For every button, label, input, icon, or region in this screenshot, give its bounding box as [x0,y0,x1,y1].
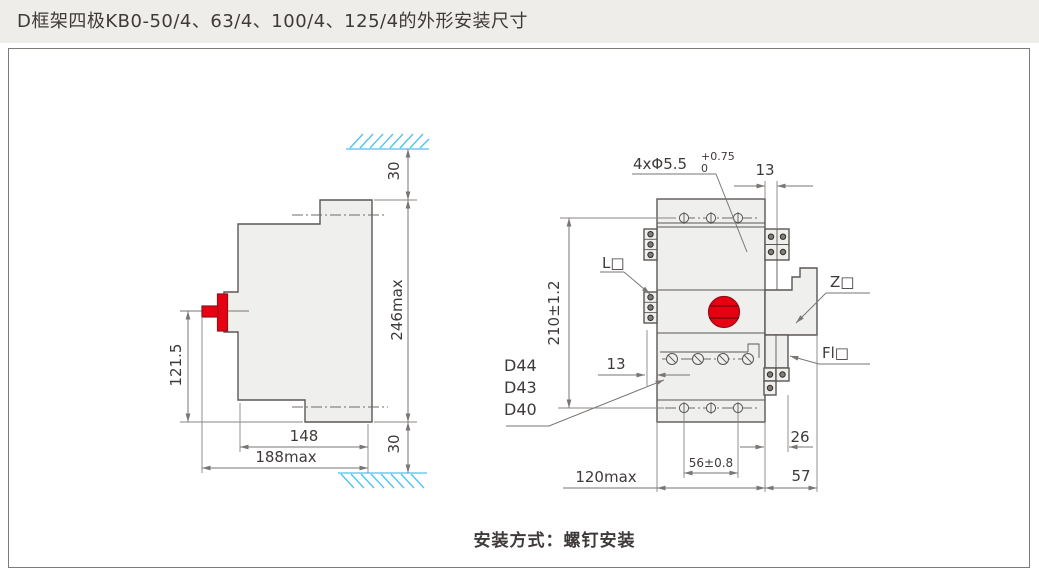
label-z-accessory: Z□ [830,273,854,291]
label-model-2: D43 [504,378,537,397]
dim-top-gap: 30 [385,161,403,180]
left-terminal-strip-upper [644,229,657,260]
dim-bottom-gap: 30 [385,434,403,453]
dim-hole-pitch-vertical-label: 210±1.2 [545,280,563,345]
label-model-1: D44 [504,356,537,375]
side-view: 30 246max 30 121.5 148 188max [167,134,429,488]
callout-aux-contact: L□ [600,254,650,294]
stop-button [709,297,740,328]
mounting-surface-bottom-hatch [338,473,427,488]
dim-top-terminal-depth: 13 [734,161,813,186]
technical-drawing: 30 246max 30 121.5 148 188max [0,0,1039,578]
dim-mounting-holes-label: 4xΦ5.5 [633,155,687,173]
front-view: 210±1.2 13 4xΦ5.5 +0.75 0 L□ Z□ Fl [504,150,870,492]
dim-overall-depth: 188max [255,448,316,466]
dim-handle-to-base-label: 121.5 [167,344,185,387]
label-model-3: D40 [504,400,537,419]
dim-handle-to-base: 121.5 [167,311,188,422]
mounting-method-caption: 安装方式：螺钉安装 [70,526,1039,551]
dim-side-terminal-depth-label: 13 [606,355,625,373]
dim-overall-width-label: 120max [575,468,636,486]
mounting-surface-top-hatch [346,134,429,149]
callout-models: D44 D43 D40 [504,356,664,426]
label-aux-contact: L□ [602,254,625,272]
right-terminal-block-upper [765,229,789,290]
z-accessory-block [765,268,817,335]
dim-overall-height: 246max [388,279,406,340]
dim-hole-pitch-horizontal: 56±0.8 [684,456,738,473]
dim-accessory-width-label: 57 [791,467,810,485]
dim-hole-pitch-horizontal-label: 56±0.8 [689,456,733,470]
dim-top-terminal-depth-label: 13 [755,161,774,179]
callout-fl-accessory: Fl□ [790,344,870,364]
fl-accessory-strip [764,335,789,395]
dim-accessory-width: 57 [765,467,817,488]
left-terminal-strip-lower [644,292,657,323]
dim-body-depth: 148 [290,427,319,445]
dim-lower-terminal-depth-label: 26 [790,428,809,446]
dim-hole-pitch-vertical: 210±1.2 [545,218,569,408]
dim-lower-terminal-depth: 26 [740,428,813,447]
label-fl-accessory: Fl□ [822,344,849,362]
dim-hole-tol-lower: 0 [701,162,708,175]
dim-overall-width: 120max [563,468,765,488]
